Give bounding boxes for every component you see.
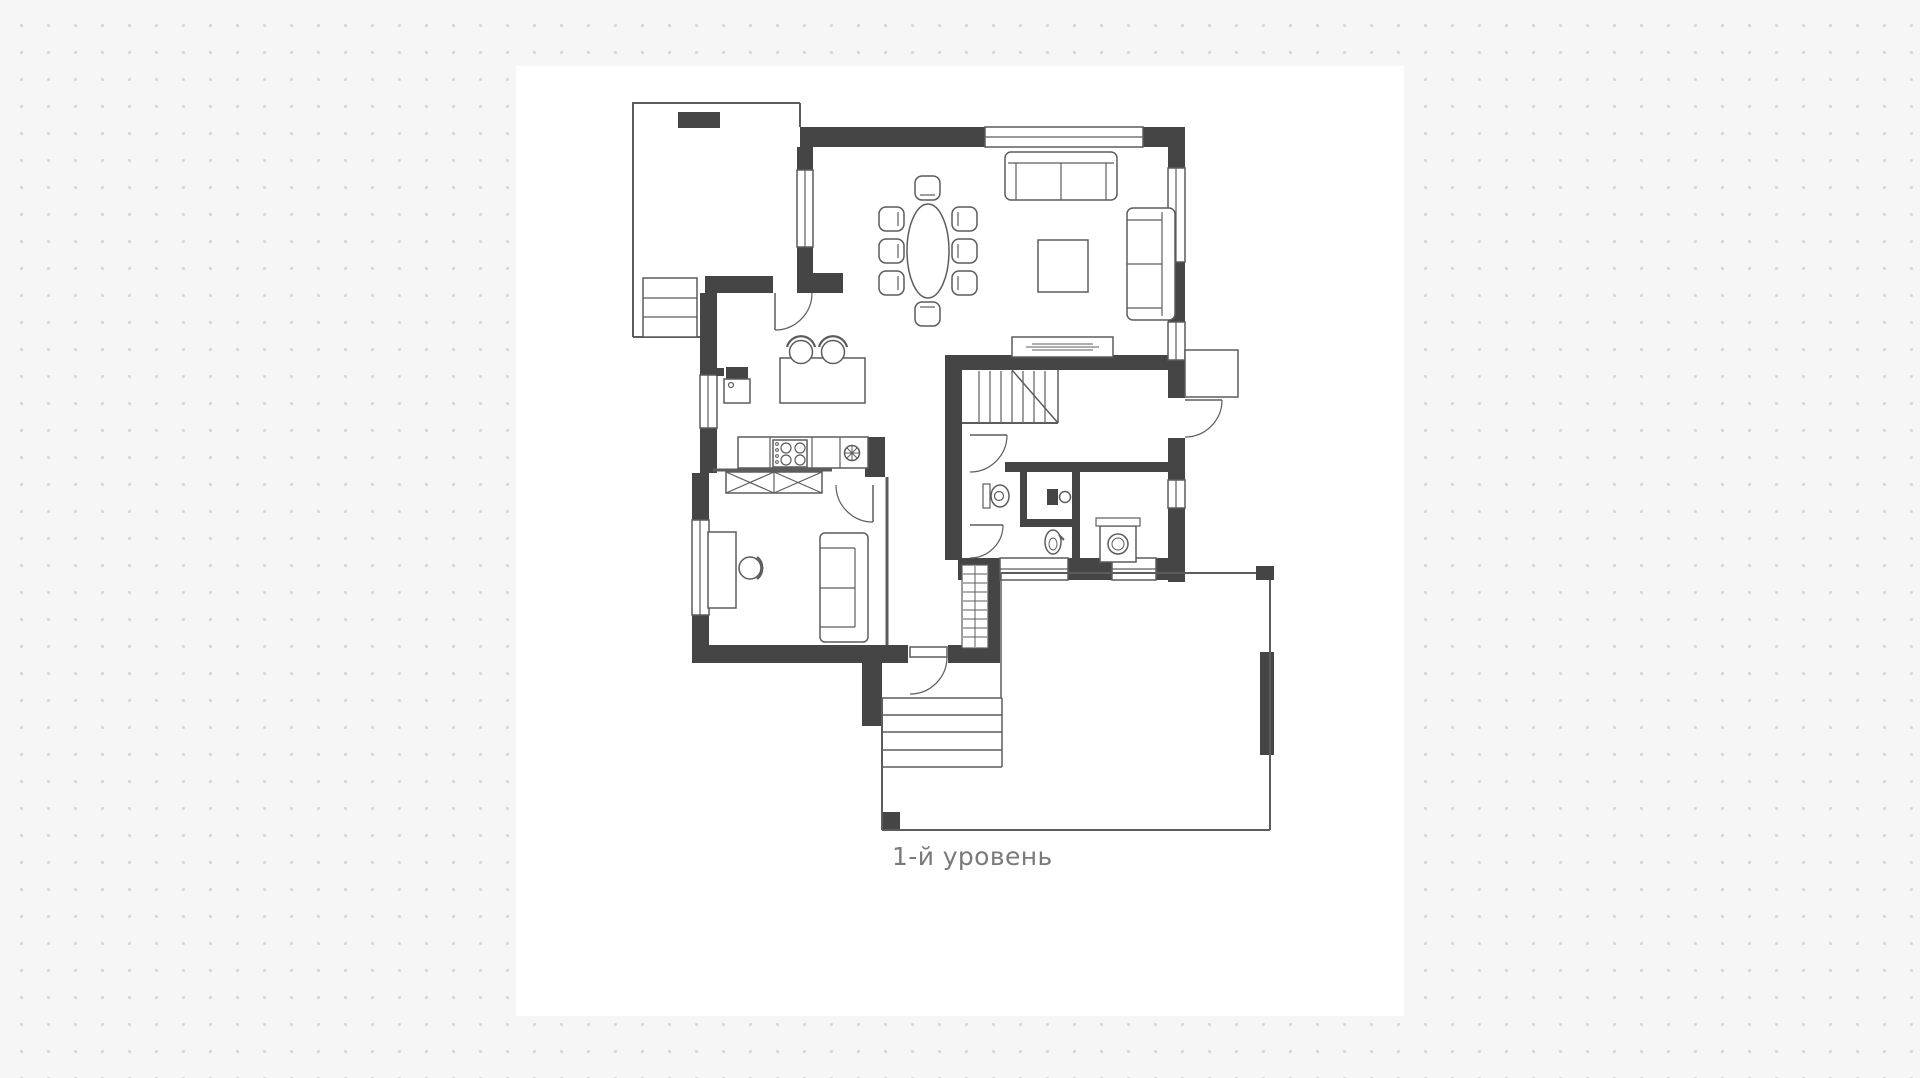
kitchen-left-wall (700, 428, 717, 473)
stove-burner (795, 455, 805, 465)
kitchen-sink-unit (724, 379, 750, 403)
washbasin-pedestal (1047, 489, 1058, 505)
stove-knob (776, 443, 779, 446)
floor-plan-canvas: 1-й уровень (516, 66, 1404, 1016)
coffee-table (1038, 240, 1088, 292)
stove-burner (795, 443, 805, 453)
door-garage-kitchen-arc (775, 293, 812, 330)
entrance-porch (1185, 350, 1238, 397)
kitchen-faucet (716, 368, 724, 376)
dining-chair (879, 271, 904, 295)
dining-chair (952, 271, 977, 295)
terrace-right-wall (1260, 652, 1274, 755)
dining-table (907, 204, 949, 298)
desk (708, 532, 736, 608)
garage-chimney (678, 112, 720, 128)
stove-knob (776, 455, 779, 458)
study-left-wall (692, 473, 709, 520)
kitchen-sink-drain (729, 383, 734, 388)
kitchen-island (780, 358, 865, 403)
garage-kitchen-wall-stub (811, 273, 843, 293)
stove-burner (781, 443, 791, 453)
bath-bottom-wall (1156, 558, 1185, 580)
desk-chair (739, 557, 761, 579)
wc-divider (1020, 472, 1027, 522)
door-entrance-arc (1185, 400, 1222, 437)
top-wall (800, 127, 985, 147)
porch-side-wall (862, 658, 882, 726)
bidet-inner (1049, 538, 1057, 550)
dining-chair (952, 207, 977, 231)
stove-knob (776, 461, 779, 464)
dining-chair (915, 302, 940, 326)
kitchen-left-wall (700, 293, 717, 375)
door-corridor-arc (970, 435, 1007, 472)
kitchen-sink-unit-top (726, 367, 748, 379)
right-wall (1168, 438, 1185, 480)
corridor-wall (1005, 462, 1168, 472)
right-wall (1168, 127, 1185, 168)
toilet-tank (983, 484, 990, 508)
right-wall (1168, 360, 1185, 398)
door-front-leaf (910, 647, 947, 657)
dining-chair (915, 176, 940, 200)
toilet-bowl-inner (995, 492, 1004, 501)
door-front-arc (910, 657, 947, 694)
terrace-corner-block (882, 812, 900, 830)
bath-shelf-wall (1020, 519, 1072, 527)
floor-plan-svg (516, 66, 1404, 1016)
bath-shelf (1096, 518, 1140, 526)
garage-kitchen-wall (705, 276, 773, 293)
living-left-wall (797, 147, 813, 170)
door-kitchen-study-arc (836, 485, 873, 522)
door-bathroom-arc (970, 525, 1003, 558)
plan-level-caption: 1-й уровень (892, 842, 1053, 871)
garage-bench (643, 278, 697, 337)
hall-left-wall (945, 355, 962, 560)
stove-knob (776, 449, 779, 452)
dining-chair (952, 239, 977, 263)
washbasin-bowl (1060, 492, 1071, 503)
stove-burner (781, 455, 791, 465)
stair-break-line (1012, 370, 1058, 423)
dining-chair (879, 207, 904, 231)
living-left-wall (797, 247, 813, 293)
bar-stool (790, 341, 813, 364)
washing-machine-drum-inner (1112, 538, 1124, 550)
terrace-corner-block (1256, 566, 1274, 580)
dining-chair (879, 239, 904, 263)
bar-stool (822, 341, 845, 364)
